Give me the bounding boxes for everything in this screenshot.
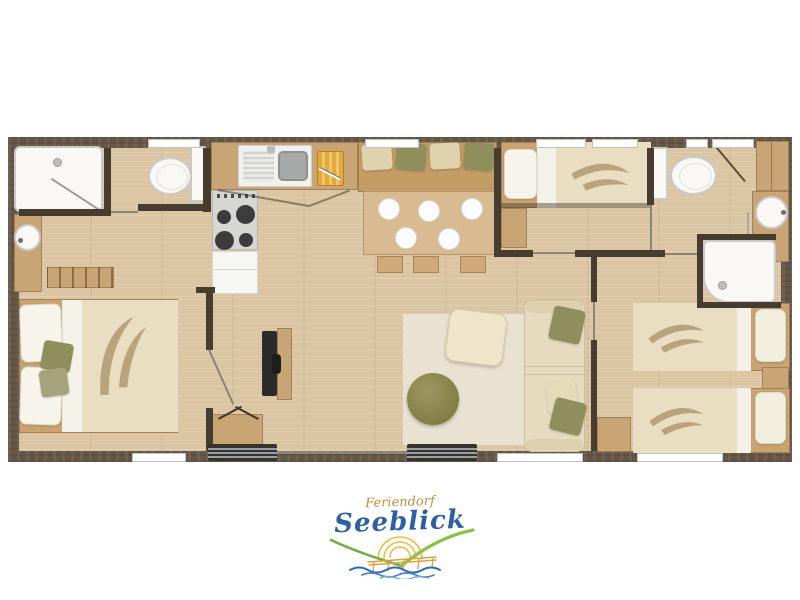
wall-bath2-west xyxy=(647,148,654,205)
plate-5 xyxy=(438,228,460,250)
sliding-door-panel-1 xyxy=(208,444,277,461)
toilet-2-tank xyxy=(652,147,668,200)
burner-4 xyxy=(239,233,253,247)
burner-3 xyxy=(215,231,234,250)
toilet-1-seat xyxy=(156,164,188,190)
logo-wave-1 xyxy=(350,568,440,573)
wall-twin-room-upper xyxy=(591,250,597,302)
sofa-seam-1 xyxy=(525,366,584,367)
door-leaf-bath2 xyxy=(650,205,652,250)
twin-bed-1-sheet-band xyxy=(737,303,751,371)
window-top-dining xyxy=(365,139,419,148)
wall-shower2-bottom xyxy=(697,302,781,308)
wall-shower2-left xyxy=(697,234,703,308)
burner-2 xyxy=(236,205,255,224)
sink-tap xyxy=(267,146,275,153)
accent-cushion-2 xyxy=(38,367,69,398)
open-shelf xyxy=(47,267,114,288)
plate-2 xyxy=(418,200,440,222)
washbasin-2-tap xyxy=(781,210,786,215)
bench-cushion-4 xyxy=(463,142,495,171)
twin-bed-2-sheet-band xyxy=(737,388,751,453)
floor-plan-canvas: Feriendorf Seeblick xyxy=(0,0,800,600)
shower-tray-2 xyxy=(703,240,776,303)
window-bottom-sofa xyxy=(497,453,583,462)
window-top-single-2 xyxy=(592,139,638,148)
wall-bath1-right xyxy=(104,148,111,215)
nightstand-single xyxy=(501,208,527,248)
sliding-door-track xyxy=(277,451,407,454)
window-top-single-1 xyxy=(536,139,586,148)
twin-bed-1-pillow xyxy=(755,309,786,362)
entry-door-2-opening xyxy=(712,139,754,148)
fridge-divider xyxy=(213,269,257,270)
door-leaf-twin-room xyxy=(593,302,595,340)
door-leaf-wc xyxy=(111,211,138,213)
sink-drainer xyxy=(243,150,274,182)
single-bed-pillow xyxy=(504,149,537,199)
single-bed-sheet-band xyxy=(537,142,556,208)
sink-basin xyxy=(278,151,308,181)
square-pouf xyxy=(444,308,508,368)
twin-bed-2-pillow xyxy=(755,392,786,444)
window-bottom-twin xyxy=(637,453,723,462)
twin-room-cabinet xyxy=(597,417,631,452)
fridge xyxy=(212,251,258,294)
bath2-cabinet-divider xyxy=(771,142,772,190)
nightstand-twin xyxy=(762,367,789,389)
logo-graphic xyxy=(328,527,476,579)
stool-3 xyxy=(460,256,486,273)
wall-corridor-a xyxy=(494,250,533,257)
sliding-door-panel-2 xyxy=(407,444,477,461)
wall-single-bedroom-west xyxy=(494,148,501,257)
window-top-bath2 xyxy=(686,139,708,148)
wall-corridor-b xyxy=(575,250,665,257)
wall-wc-bottom xyxy=(138,204,203,211)
burner-1 xyxy=(217,210,231,224)
door-leaf-corridor xyxy=(533,252,575,254)
bath2-corner-cabinet xyxy=(756,141,789,191)
tv-mount xyxy=(272,354,281,374)
sofa-armrest-bottom xyxy=(526,439,583,450)
toilet-2-seat xyxy=(679,163,712,190)
wall-kitchen-west xyxy=(203,148,211,212)
shower-drain-2 xyxy=(718,281,727,290)
shower-drain-1 xyxy=(53,158,62,167)
wall-twin-room-lower xyxy=(591,340,597,451)
bench-cushion-3 xyxy=(429,142,460,170)
stool-1 xyxy=(377,256,403,273)
wall-shower2-top xyxy=(697,234,776,240)
plate-4 xyxy=(395,227,417,249)
washbasin-1-tap xyxy=(18,238,23,243)
window-top-wc xyxy=(148,139,200,148)
wall-bedroom1-upper xyxy=(206,288,213,350)
round-pouf xyxy=(407,373,459,425)
wall-bath1-bottom xyxy=(19,209,111,216)
plate-1 xyxy=(378,198,400,220)
blanket-decor-double xyxy=(88,312,150,400)
sofa-seam-2 xyxy=(525,374,584,375)
plate-3 xyxy=(461,198,483,220)
door-leaf-bath2-south xyxy=(665,253,697,255)
window-bottom-master xyxy=(132,453,186,462)
stool-2 xyxy=(413,256,439,273)
